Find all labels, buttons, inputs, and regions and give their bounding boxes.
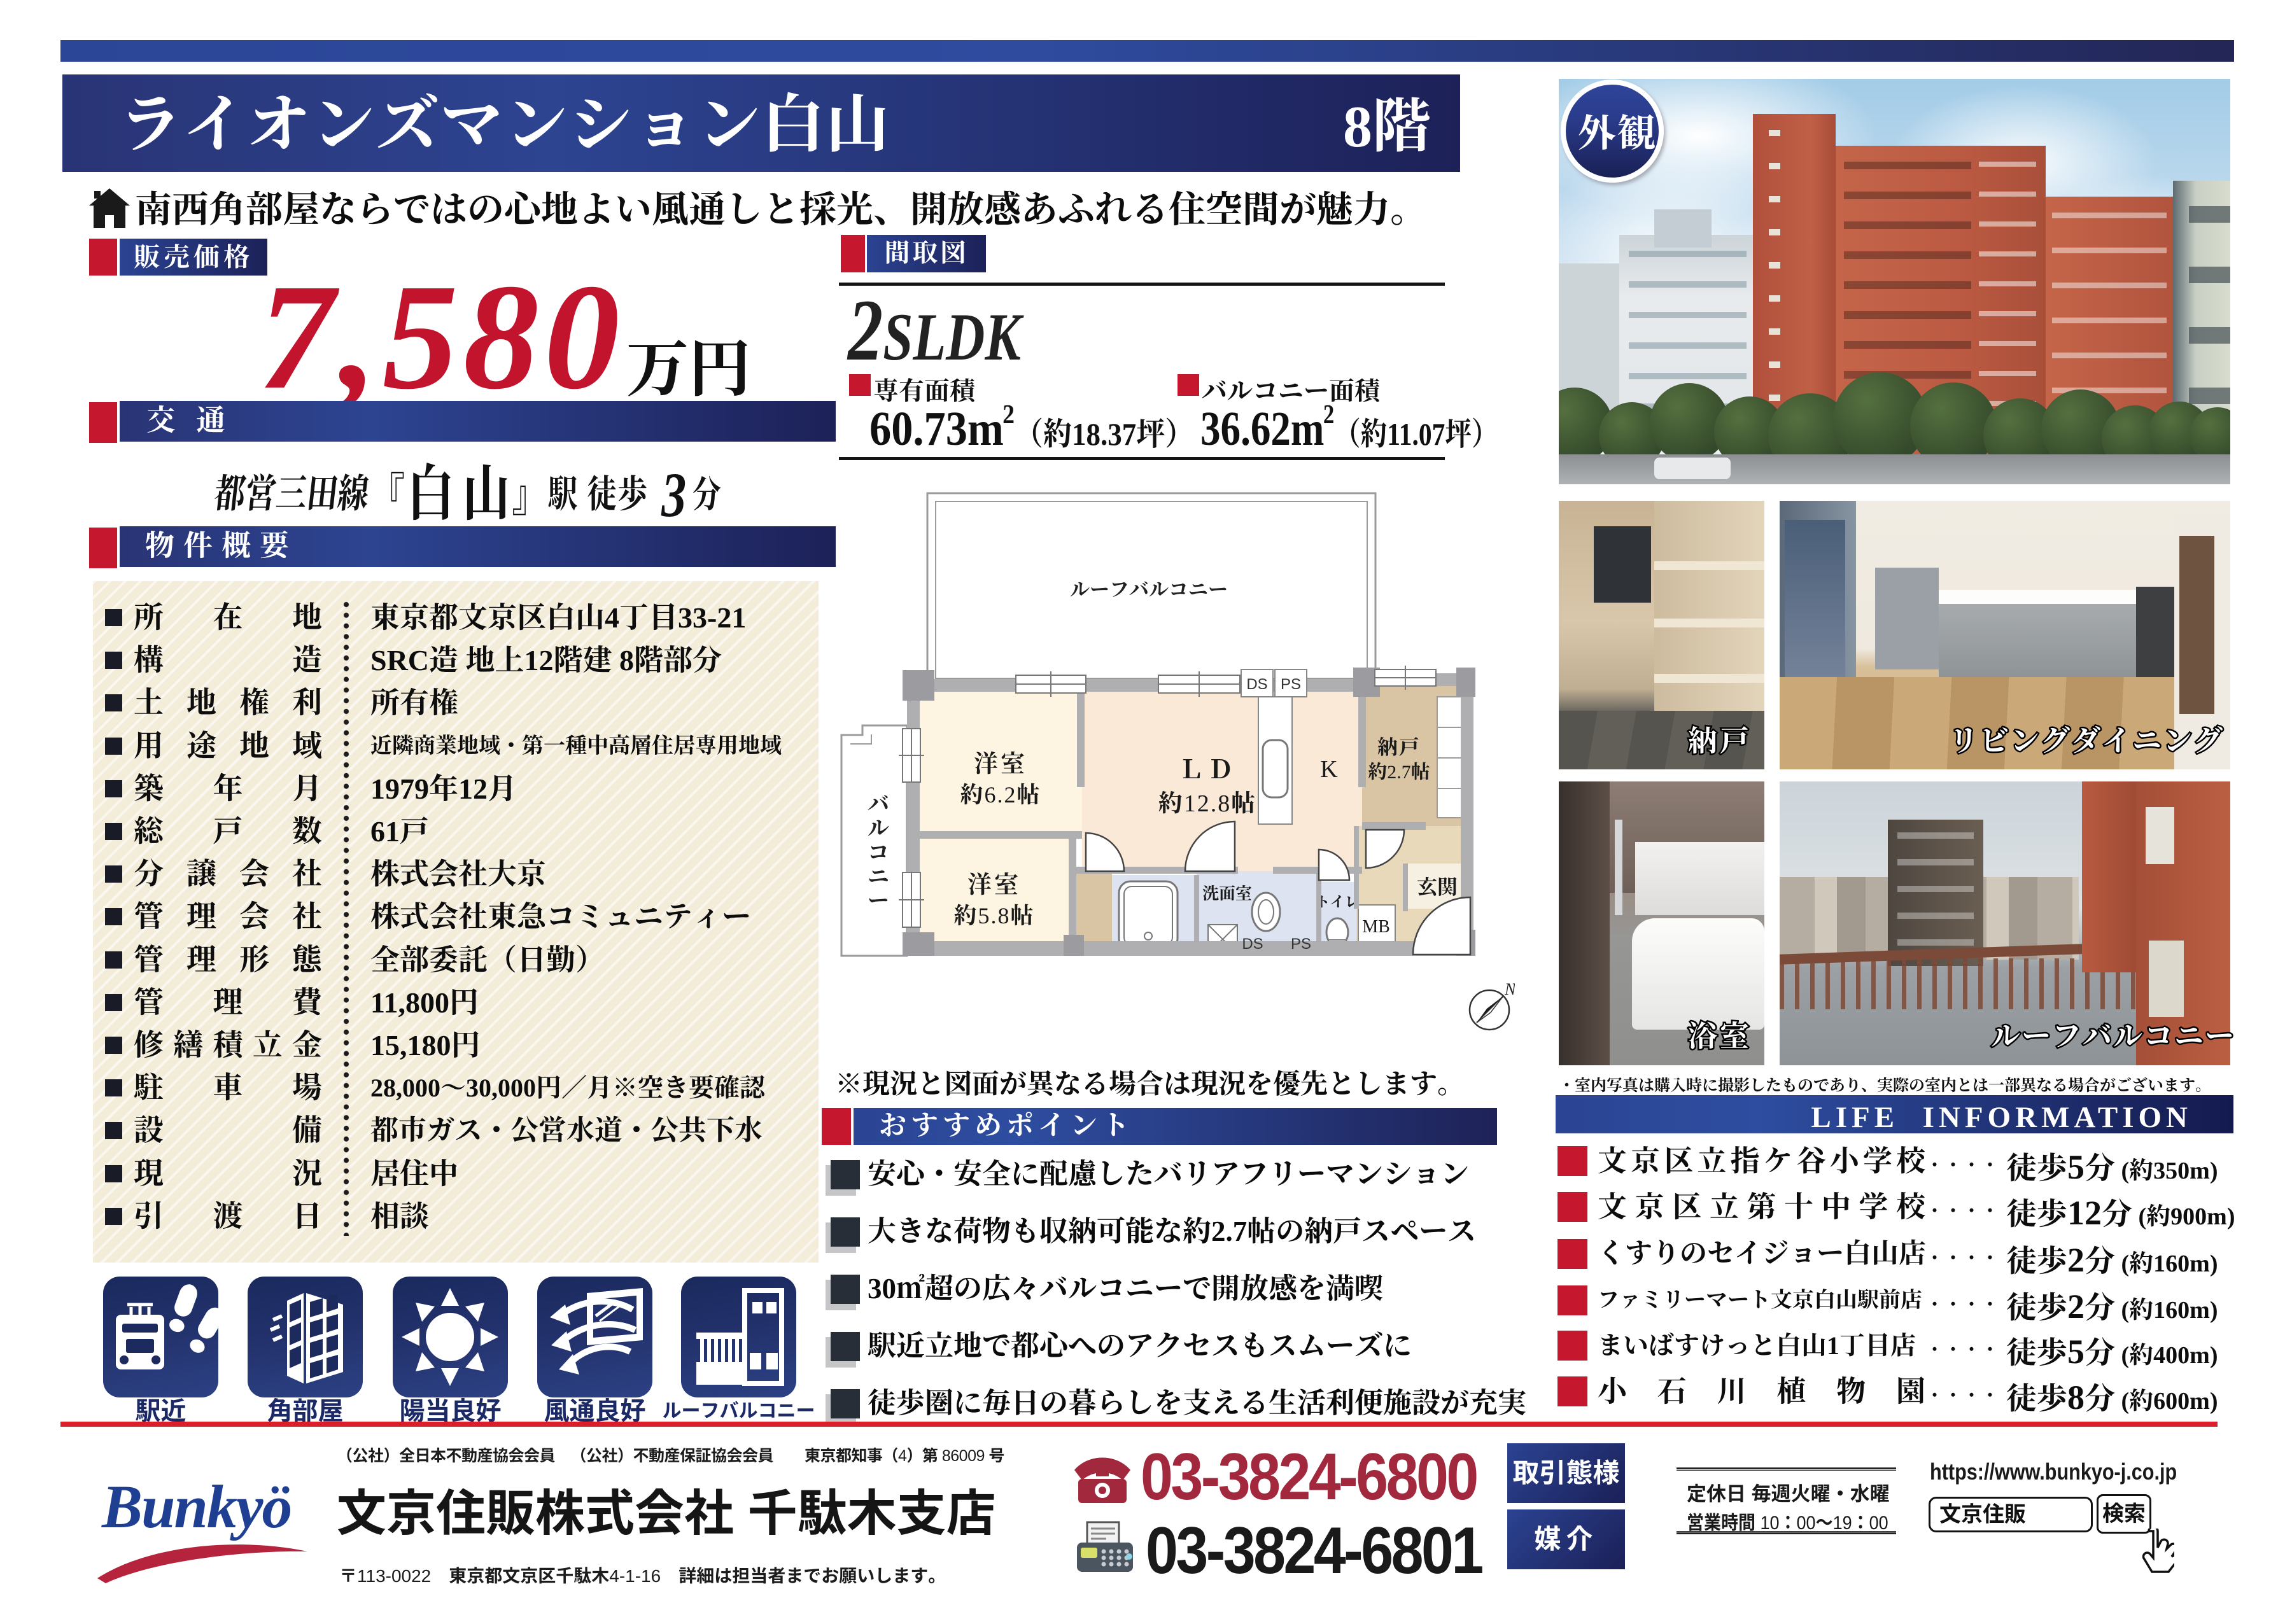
svg-text:DS: DS xyxy=(1242,935,1263,953)
svg-text:洋室: 洋室 xyxy=(974,751,1027,778)
svg-text:ＬＤ: ＬＤ xyxy=(1178,755,1237,784)
svg-text:トイレ: トイレ xyxy=(1316,894,1360,910)
svg-text:納戸: 納戸 xyxy=(1377,736,1421,759)
svg-text:PS: PS xyxy=(1281,676,1301,693)
svg-text:洋室: 洋室 xyxy=(967,872,1021,899)
svg-text:N: N xyxy=(1504,980,1515,998)
svg-text:約6.2帖: 約6.2帖 xyxy=(960,782,1041,808)
svg-text:K: K xyxy=(1320,756,1338,783)
svg-text:玄関: 玄関 xyxy=(1417,876,1458,899)
svg-text:ルーフバルコニー: ルーフバルコニー xyxy=(1070,578,1228,601)
svg-text:約12.8帖: 約12.8帖 xyxy=(1158,790,1257,817)
svg-text:約2.7帖: 約2.7帖 xyxy=(1368,762,1430,783)
svg-text:MB: MB xyxy=(1362,917,1390,937)
svg-text:DS: DS xyxy=(1246,676,1267,693)
svg-text:PS: PS xyxy=(1291,935,1311,953)
svg-text:バルコニー: バルコニー xyxy=(864,792,889,913)
svg-text:約5.8帖: 約5.8帖 xyxy=(953,903,1034,928)
svg-text:洗面室: 洗面室 xyxy=(1202,885,1252,903)
